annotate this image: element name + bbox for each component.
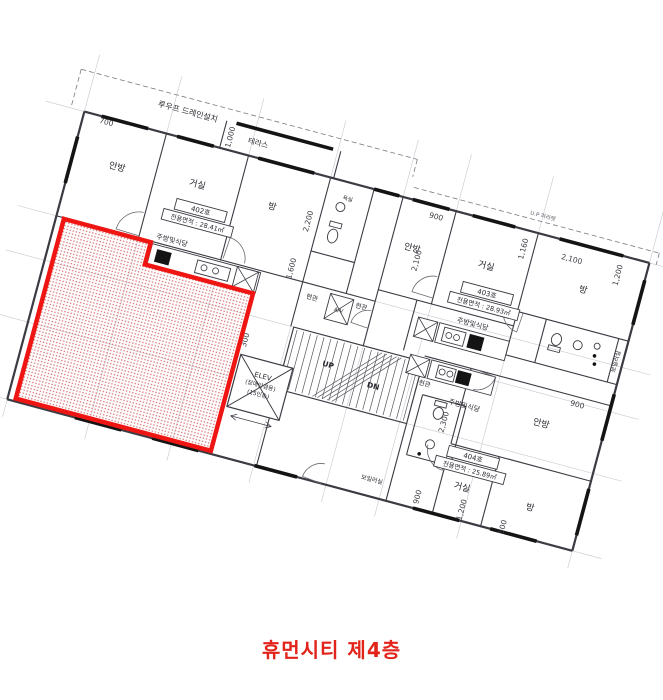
window-segment bbox=[576, 489, 588, 535]
dimension-label: 1,160 bbox=[516, 237, 530, 260]
dimension-label: 2,100 bbox=[560, 252, 583, 266]
window-segment bbox=[374, 189, 399, 196]
dimension-label: 1,600 bbox=[284, 257, 298, 280]
stair-break-line bbox=[312, 338, 382, 410]
interior-wall bbox=[311, 251, 354, 263]
dimension-label: 2,200 bbox=[301, 209, 315, 232]
stair-tread bbox=[356, 350, 372, 408]
window-segment bbox=[258, 158, 314, 173]
room-label: 거실 bbox=[452, 480, 471, 495]
window-segment bbox=[633, 280, 645, 324]
interior-wall bbox=[403, 300, 416, 350]
room-label: UP bbox=[321, 359, 335, 371]
stair-break-line bbox=[322, 341, 392, 413]
roof-dashed-line bbox=[656, 253, 659, 265]
interior-wall bbox=[506, 355, 617, 385]
interior-wall bbox=[432, 465, 445, 513]
toilet-tank bbox=[329, 221, 342, 229]
window-segment bbox=[255, 466, 298, 477]
door-swing bbox=[116, 207, 145, 236]
stair-tread bbox=[322, 341, 338, 399]
dimension-label: 1,200 bbox=[611, 263, 625, 286]
door-swing bbox=[223, 237, 250, 264]
room-label: 현관 bbox=[305, 291, 319, 303]
room-label: 방 bbox=[525, 501, 536, 514]
floor-plan-page: ELEV(장애인겸용)(15인승)402호전용면적 : 28.41㎡403호전용… bbox=[0, 0, 663, 700]
drain-dot bbox=[417, 452, 421, 456]
room-label: 보일러실 bbox=[360, 473, 383, 486]
window-segment bbox=[602, 394, 614, 440]
stair-tread bbox=[295, 334, 311, 392]
room-label: 루우프 드레인설치 bbox=[157, 99, 219, 125]
stair-tread bbox=[390, 359, 406, 417]
toilet-bowl bbox=[550, 332, 563, 346]
interior-wall bbox=[139, 134, 167, 238]
wash-basin bbox=[593, 343, 600, 350]
room-label: 안방 bbox=[108, 160, 127, 175]
rotated-plan-group: ELEV(장애인겸용)(15인승)402호전용면적 : 28.41㎡403호전용… bbox=[0, 44, 663, 576]
stair-tread bbox=[302, 335, 318, 393]
dimension-label: 1,200 bbox=[455, 498, 469, 521]
interior-wall bbox=[334, 151, 341, 178]
roof-dashed-line bbox=[414, 187, 659, 253]
interior-wall bbox=[346, 189, 374, 293]
stair-tread bbox=[329, 343, 345, 401]
room-label: U.P 파라펫 bbox=[529, 209, 556, 223]
toilet-bowl bbox=[326, 228, 339, 244]
room-label: 거실 bbox=[477, 259, 496, 274]
caption: 휴먼시티 제4층 bbox=[0, 634, 663, 663]
wash-basin bbox=[425, 439, 436, 450]
wash-basin bbox=[335, 202, 346, 213]
interior-wall bbox=[517, 311, 628, 341]
dimension-label: 900 bbox=[411, 489, 423, 505]
toilet-tank bbox=[434, 400, 447, 408]
drain-dot bbox=[592, 354, 596, 358]
room-label: 방 bbox=[578, 284, 589, 297]
roof-dashed-line bbox=[81, 69, 417, 159]
interior-wall bbox=[363, 197, 403, 346]
wash-basin bbox=[572, 340, 583, 351]
interior-wall bbox=[221, 156, 249, 260]
window-segment bbox=[177, 136, 214, 146]
interior-wall bbox=[431, 211, 456, 304]
dimension-label: 1,000 bbox=[223, 125, 237, 148]
stair-tread bbox=[383, 357, 399, 415]
window-segment bbox=[413, 508, 459, 520]
room-label: 현관 bbox=[354, 300, 368, 312]
window-segment bbox=[473, 216, 516, 227]
dimension-label: 900 bbox=[569, 398, 585, 410]
room-label: 욕실 bbox=[342, 193, 354, 203]
room-label: 안방 bbox=[532, 416, 551, 431]
room-label: 거실 bbox=[188, 177, 207, 192]
dimension-label: 900 bbox=[428, 210, 444, 222]
room-label: 방 bbox=[267, 200, 278, 213]
drain-dot bbox=[592, 362, 596, 366]
window-segment bbox=[65, 137, 77, 183]
toilet-tank bbox=[548, 345, 561, 353]
dimension-label: 2,300 bbox=[437, 410, 451, 433]
floor-plan-drawing: ELEV(장애인겸용)(15인승)402호전용면적 : 28.41㎡403호전용… bbox=[0, 0, 663, 700]
stair-break-line bbox=[332, 343, 402, 415]
interior-wall bbox=[407, 395, 423, 455]
roof-dashed-line bbox=[413, 159, 418, 176]
window-segment bbox=[413, 200, 450, 210]
interior-wall bbox=[535, 319, 547, 362]
interior-wall bbox=[291, 178, 331, 327]
roof-dashed-line bbox=[71, 69, 81, 106]
